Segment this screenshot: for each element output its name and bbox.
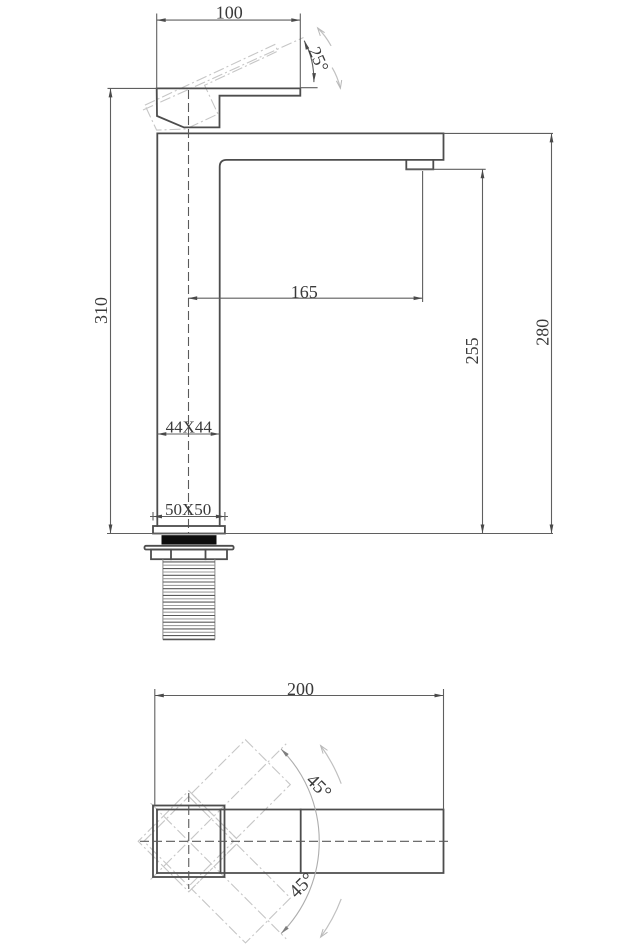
svg-text:280: 280 [532,319,552,346]
svg-text:50X50: 50X50 [165,500,211,519]
svg-text:200: 200 [287,679,314,699]
svg-text:100: 100 [216,3,243,23]
svg-text:44X44: 44X44 [166,417,213,436]
svg-text:255: 255 [462,337,482,364]
svg-text:310: 310 [91,297,111,324]
svg-text:165: 165 [291,282,318,302]
